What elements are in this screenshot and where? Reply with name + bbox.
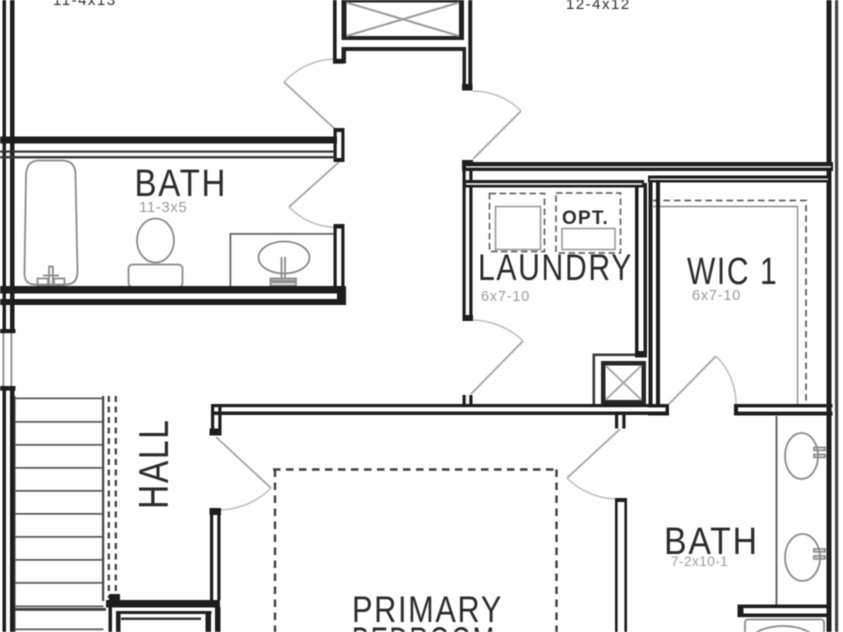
svg-text:LAUNDRY: LAUNDRY (478, 247, 633, 289)
svg-text:11-4x13: 11-4x13 (53, 0, 117, 9)
svg-text:BEDROOM: BEDROOM (352, 619, 496, 632)
svg-text:HALL: HALL (132, 419, 178, 509)
svg-text:WIC 1: WIC 1 (687, 251, 778, 293)
svg-text:6x7-10: 6x7-10 (692, 288, 741, 304)
svg-text:12-4x12: 12-4x12 (566, 0, 631, 13)
svg-text:11-3x5: 11-3x5 (139, 199, 187, 216)
svg-text:OPT.: OPT. (562, 208, 609, 229)
svg-text:7-2x10-1: 7-2x10-1 (671, 554, 728, 569)
svg-text:6x7-10: 6x7-10 (481, 289, 530, 305)
